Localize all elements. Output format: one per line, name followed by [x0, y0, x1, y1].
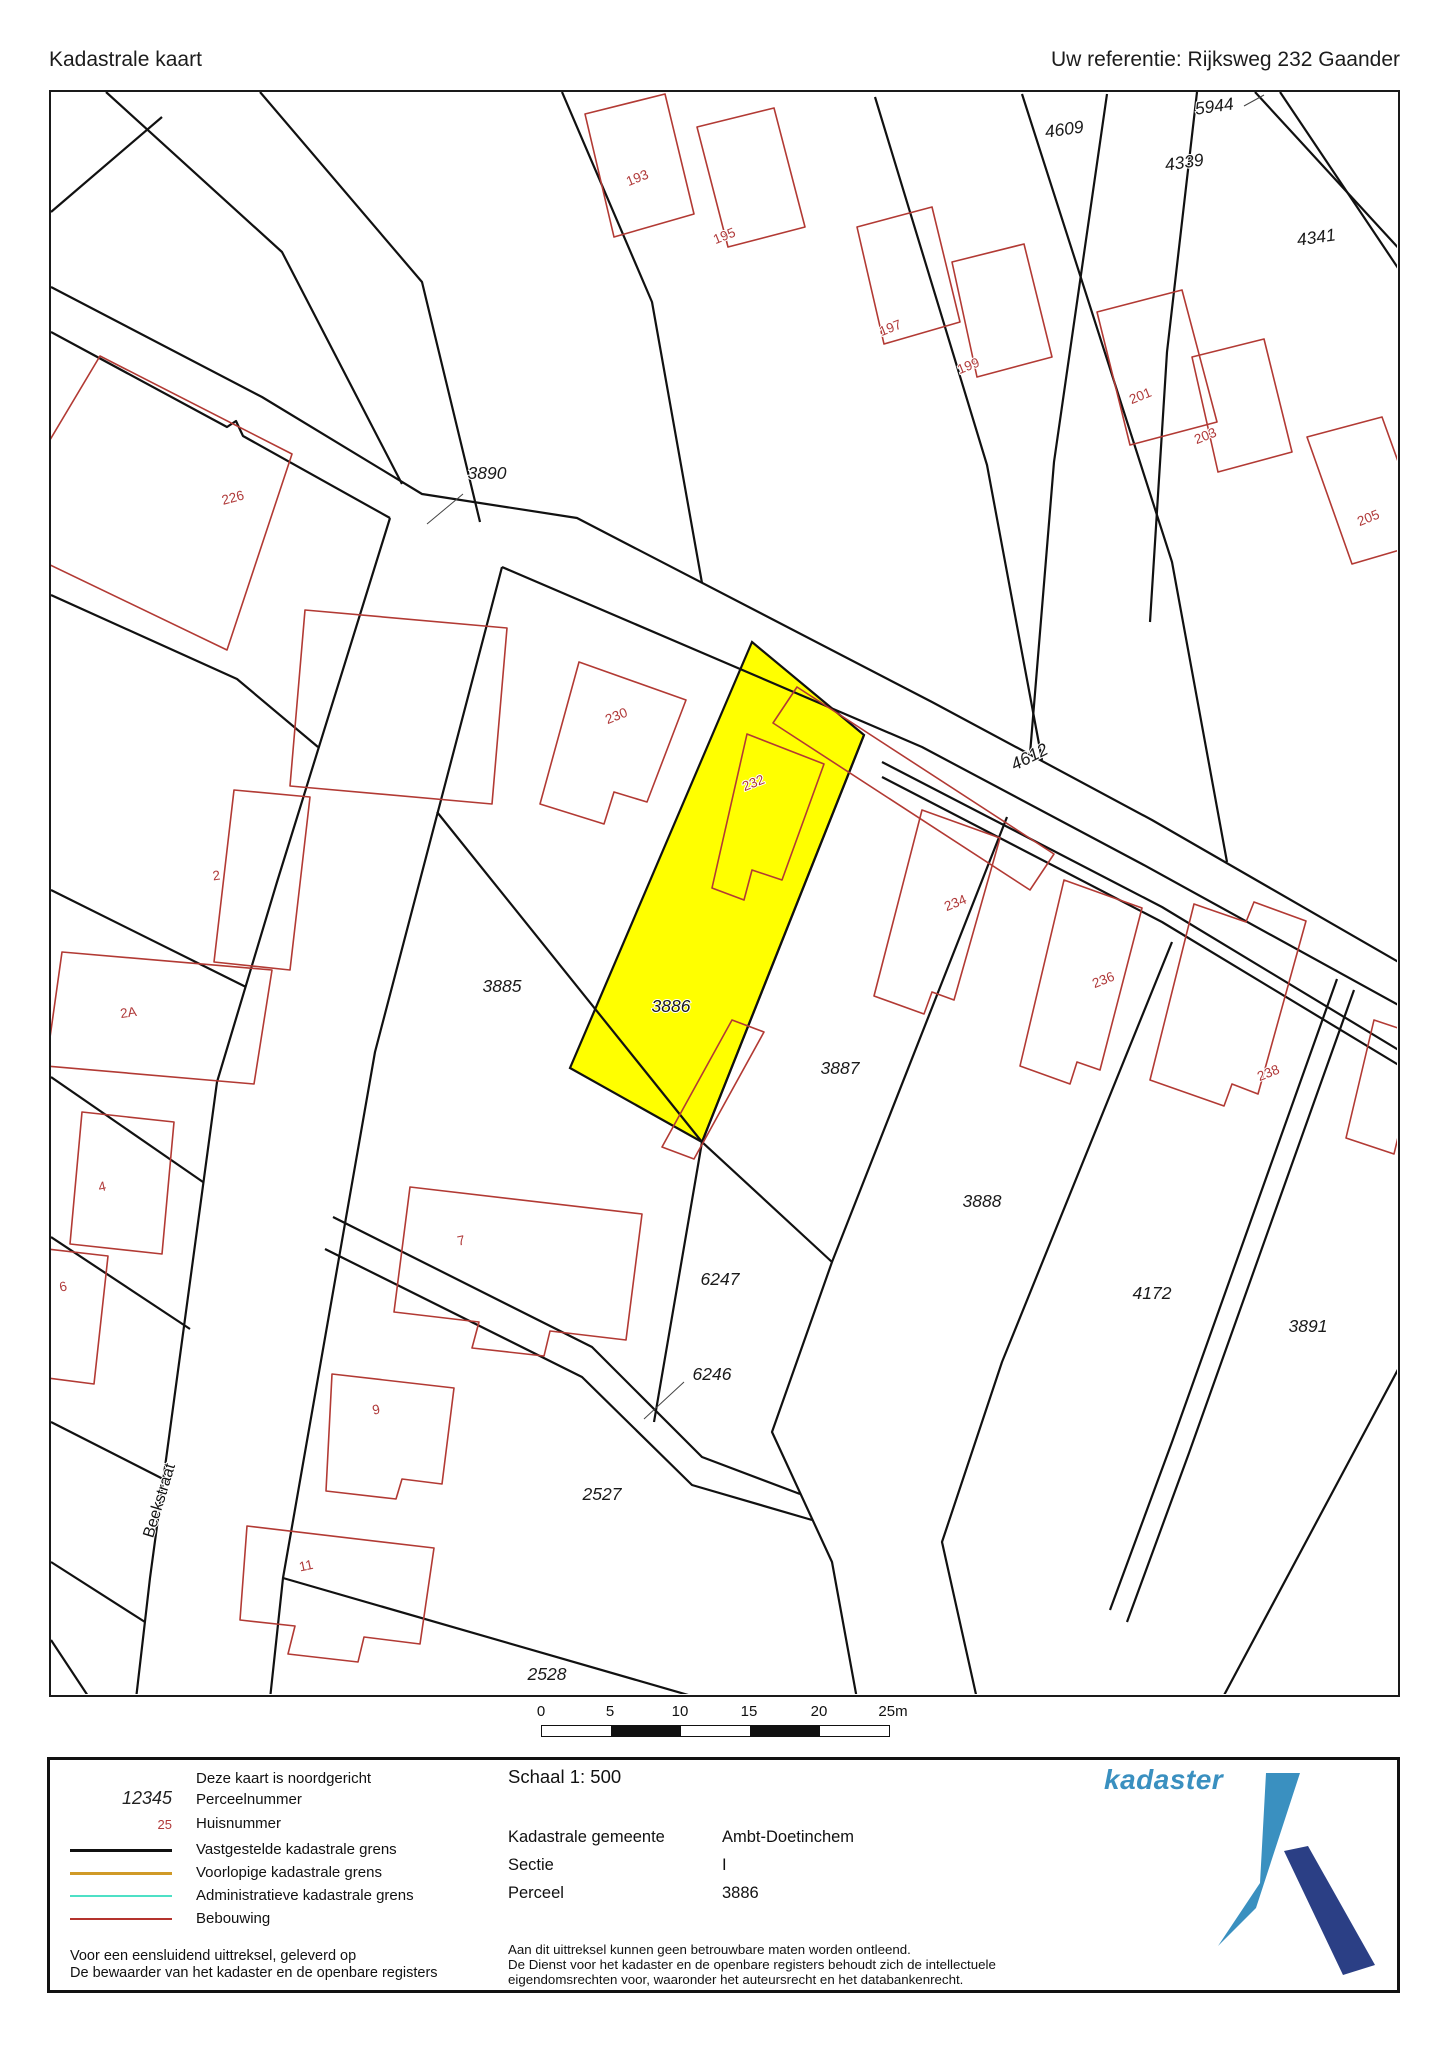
house-number-label: 230 [603, 705, 630, 727]
parcel-number-label: 3888 [963, 1191, 1002, 1211]
house-number-label: 238 [1255, 1062, 1282, 1084]
house-number-label: Huisnummer [196, 1815, 281, 1832]
label-leader-line [1244, 95, 1264, 106]
scale-tick: 25m [873, 1703, 913, 1720]
building-outline [874, 810, 1000, 1014]
parcel-boundary-line [875, 97, 1042, 760]
building-outline [214, 790, 310, 970]
parcel-boundary-line [51, 1640, 90, 1694]
house-number-label: 2 [212, 868, 222, 884]
disclaimer-line-3: eigendomsrechten voor, waaronder het aut… [508, 1973, 963, 1988]
legend-label-voorlopig: Voorlopige kadastrale grens [196, 1864, 382, 1881]
scale-bar: 0 5 10 15 20 25m [541, 1703, 901, 1739]
parcel-number-label: 6246 [693, 1364, 732, 1384]
scale-segment [820, 1726, 889, 1736]
building-outline [1192, 339, 1292, 472]
building-outline [1150, 902, 1306, 1106]
detail-label-gemeente: Kadastrale gemeente [508, 1828, 665, 1847]
parcel-boundary-line [260, 92, 480, 522]
parcel-boundary-line [1030, 94, 1107, 754]
building-outline [51, 952, 272, 1084]
cadastral-map: 4609594443394341389046127043885388638873… [51, 92, 1397, 1694]
scale-segment [750, 1726, 819, 1736]
disclaimer-line-2: De Dienst voor het kadaster en de openba… [508, 1958, 996, 1973]
parcel-boundary-line [1222, 1362, 1397, 1694]
parcel-boundary-line [51, 1077, 203, 1182]
scale-segment [542, 1726, 611, 1736]
parcel-boundary-line [942, 942, 1172, 1694]
parcel-number-label: 4341 [1295, 224, 1336, 249]
house-number-label: 236 [1090, 969, 1117, 991]
scale-tick: 10 [660, 1703, 700, 1720]
parcel-number-label: 3885 [483, 976, 522, 996]
parcel-number-label: 4612 [1007, 739, 1051, 775]
north-note: Deze kaart is noordgericht [196, 1770, 371, 1787]
legend-line-administratief [70, 1895, 172, 1897]
detail-value-sectie: I [722, 1856, 727, 1875]
parcel-boundary-line [772, 817, 1007, 1694]
parcel-boundary-line [51, 595, 318, 747]
legend-line-voorlopig [70, 1872, 172, 1875]
legend-label-administratief: Administratieve kadastrale grens [196, 1887, 414, 1904]
parcel-number-sample: 12345 [86, 1788, 172, 1809]
house-number-label: 205 [1355, 507, 1382, 529]
building-outline [394, 1187, 642, 1356]
parcel-boundary-line [51, 1562, 145, 1622]
parcel-boundary-line [51, 1422, 169, 1482]
street-name-label: Beekstraat [140, 1461, 179, 1540]
house-number-label: 2A [119, 1004, 137, 1021]
parcel-boundary-line [106, 92, 402, 484]
scale-label: Schaal 1: 500 [508, 1766, 621, 1788]
house-number-label: 226 [220, 487, 246, 507]
scale-segment [681, 1726, 750, 1736]
parcel-number-label: 4609 [1043, 116, 1085, 141]
house-number-label: 197 [877, 317, 904, 339]
scale-tick: 15 [729, 1703, 769, 1720]
legend-line-vastgesteld [70, 1849, 172, 1852]
parcel-boundary-line [562, 92, 702, 583]
detail-label-sectie: Sectie [508, 1856, 554, 1875]
disclaimer-line-1: Aan dit uittreksel kunnen geen betrouwba… [508, 1943, 911, 1958]
scale-tick: 20 [799, 1703, 839, 1720]
legend-label-vastgesteld: Vastgestelde kadastrale grens [196, 1841, 397, 1858]
house-number-label: 7 [456, 1232, 466, 1248]
parcel-number-label: 5944 [1193, 93, 1235, 118]
house-number-label: 6 [58, 1278, 68, 1294]
parcel-boundary-line [51, 1237, 190, 1329]
building-outline [51, 356, 292, 650]
house-number-label: 4 [97, 1178, 108, 1194]
parcel-boundary-line [51, 117, 162, 212]
parcel-number-label: 2527 [582, 1484, 623, 1504]
house-number-label: 201 [1127, 385, 1154, 407]
building-outline [51, 1247, 108, 1384]
scale-segment [611, 1726, 680, 1736]
parcel-boundary-line [325, 1249, 812, 1520]
parcel-number-label: 3891 [1289, 1316, 1328, 1336]
house-number-label: 195 [711, 225, 738, 247]
parcel-number-label: 3887 [821, 1058, 861, 1078]
building-outline [697, 108, 805, 247]
scale-bar-segments [541, 1725, 890, 1737]
building-outline [585, 94, 694, 237]
legend-footer-2: De bewaarder van het kadaster en de open… [70, 1965, 438, 1981]
parcel-boundary-line [283, 1578, 702, 1694]
house-number-label: 9 [371, 1401, 381, 1417]
scale-tick: 0 [521, 1703, 561, 1720]
map-frame: 4609594443394341389046127043885388638873… [49, 90, 1400, 1697]
kadaster-logo-icon [1200, 1768, 1410, 1988]
page-title: Kadastrale kaart [49, 48, 202, 72]
kadastrale-kaart-page: Kadastrale kaart Uw referentie: Rijksweg… [0, 0, 1447, 2048]
building-outline [1307, 417, 1397, 564]
building-outline [540, 662, 686, 824]
parcel-number-label: 3886 [652, 996, 691, 1016]
scale-tick: 5 [590, 1703, 630, 1720]
house-number-label: 234 [942, 891, 969, 914]
reference-text: Uw referentie: Rijksweg 232 Gaander [1051, 48, 1400, 72]
label-leader-line [644, 1382, 684, 1419]
house-number-label: 11 [298, 1557, 315, 1575]
legend-box: Deze kaart is noordgericht 12345 Perceel… [47, 1757, 1400, 1993]
parcel-boundary-line [333, 1217, 800, 1494]
building-outline [1020, 880, 1142, 1084]
parcel-number-label: 3890 [468, 463, 507, 483]
building-outline [1346, 1020, 1397, 1154]
detail-value-perceel: 3886 [722, 1884, 759, 1903]
parcel-number-label: 4172 [1133, 1283, 1172, 1303]
building-outline [326, 1374, 454, 1499]
building-outline [290, 610, 507, 804]
parcel-number-label: 6247 [701, 1269, 741, 1289]
detail-value-gemeente: Ambt-Doetinchem [722, 1828, 854, 1847]
parcel-boundary-line [1127, 990, 1354, 1622]
parcel-number-label: 2528 [527, 1664, 567, 1684]
parcel-boundary-line [51, 332, 390, 518]
detail-label-perceel: Perceel [508, 1884, 564, 1903]
house-number-label: 193 [624, 167, 651, 189]
legend-footer-1: Voor een eensluidend uittreksel, gelever… [70, 1948, 356, 1964]
parcel-boundary-line [136, 518, 390, 1694]
legend-label-bebouwing: Bebouwing [196, 1910, 270, 1927]
building-outline [1097, 290, 1217, 445]
house-number-label: 199 [955, 355, 982, 377]
legend-line-bebouwing [70, 1918, 172, 1920]
building-outline [952, 244, 1052, 377]
building-outline [70, 1112, 174, 1254]
house-number-sample: 25 [86, 1817, 172, 1832]
parcel-number-label: 4339 [1163, 149, 1205, 174]
parcel-number-label: Perceelnummer [196, 1791, 302, 1808]
